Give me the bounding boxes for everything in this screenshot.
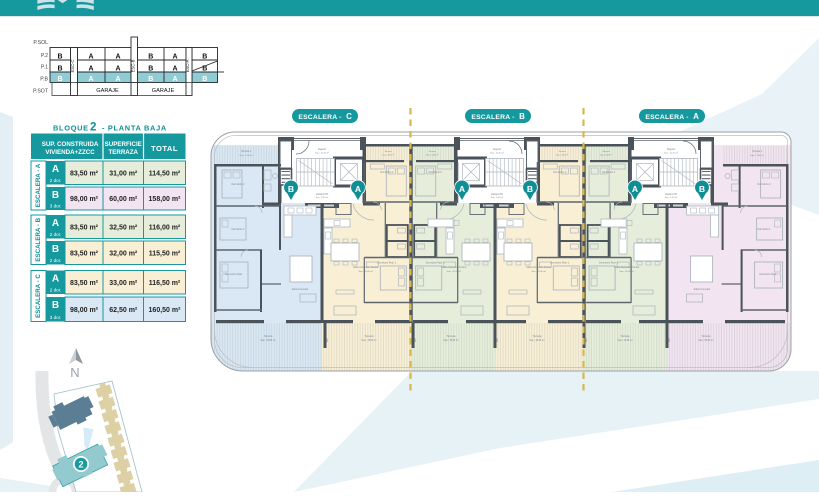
svg-text:Salón-Comedor: Salón-Comedor bbox=[694, 288, 711, 291]
svg-text:Salón-Comedor-Cocina: Salón-Comedor-Cocina bbox=[526, 266, 552, 269]
svg-text:ESCALERA -: ESCALERA - bbox=[298, 114, 341, 121]
svg-text:SEP.: SEP. bbox=[669, 337, 671, 342]
svg-text:Sup.: 60,00 m²: Sup.: 60,00 m² bbox=[698, 339, 713, 342]
svg-text:Sup.: 20,05 m²: Sup.: 20,05 m² bbox=[358, 270, 373, 273]
svg-text:Sup.: 10,15 m²: Sup.: 10,15 m² bbox=[490, 152, 504, 155]
svg-text:Dormitorio Ppal.: Dormitorio Ppal. bbox=[225, 273, 242, 276]
svg-text:A: A bbox=[88, 66, 93, 73]
svg-text:Dormitorio Ppal. 1: Dormitorio Ppal. 1 bbox=[426, 262, 446, 265]
svg-text:SEP.: SEP. bbox=[327, 337, 329, 342]
svg-text:Zaguán: Zaguán bbox=[667, 148, 676, 151]
svg-text:SEP.: SEP. bbox=[497, 337, 499, 342]
svg-text:62,50 m²: 62,50 m² bbox=[109, 307, 138, 314]
svg-text:B: B bbox=[52, 300, 59, 311]
svg-text:B: B bbox=[202, 76, 207, 83]
svg-text:Sup.: 4,60 m²: Sup.: 4,60 m² bbox=[382, 154, 394, 157]
svg-text:Terraza: Terraza bbox=[533, 334, 542, 338]
svg-text:ESCALERA -: ESCALERA - bbox=[645, 114, 688, 121]
svg-text:TERRAZA: TERRAZA bbox=[108, 149, 138, 156]
svg-text:B: B bbox=[519, 112, 525, 121]
svg-text:Rellano PB: Rellano PB bbox=[316, 194, 328, 196]
svg-text:Sup.: 4,05 m²: Sup.: 4,05 m² bbox=[665, 196, 678, 199]
svg-text:Sup.: 20,05 m²: Sup.: 20,05 m² bbox=[619, 270, 634, 273]
svg-text:GARAJE: GARAJE bbox=[96, 88, 119, 94]
svg-text:Sup.: 7,38 m²: Sup.: 7,38 m² bbox=[239, 154, 252, 157]
svg-text:A: A bbox=[52, 274, 59, 285]
svg-text:A: A bbox=[52, 164, 59, 175]
svg-text:Sup.: 20,05 m²: Sup.: 20,05 m² bbox=[447, 270, 462, 273]
svg-text:Salón-Comedor-Cocina: Salón-Comedor-Cocina bbox=[353, 266, 379, 269]
svg-text:Terraza: Terraza bbox=[621, 334, 630, 338]
svg-text:Salón-Comedor: Salón-Comedor bbox=[292, 288, 309, 291]
svg-text:SUPERFICIE: SUPERFICIE bbox=[105, 141, 142, 148]
svg-text:83,50 m²: 83,50 m² bbox=[70, 280, 99, 287]
svg-text:115,50 m²: 115,50 m² bbox=[149, 250, 181, 257]
svg-text:Sup.: 4,60 m²: Sup.: 4,60 m² bbox=[426, 154, 438, 157]
svg-text:C: C bbox=[346, 112, 352, 121]
svg-text:83,50 m²: 83,50 m² bbox=[70, 170, 99, 177]
svg-text:2 dor.: 2 dor. bbox=[50, 232, 62, 237]
svg-text:A: A bbox=[88, 76, 93, 83]
svg-text:TOTAL: TOTAL bbox=[151, 144, 178, 153]
svg-text:Rellano PB: Rellano PB bbox=[665, 194, 677, 196]
svg-text:B: B bbox=[148, 66, 153, 73]
svg-text:A: A bbox=[355, 184, 361, 194]
svg-text:A: A bbox=[632, 184, 638, 194]
svg-text:Dormitorio 2: Dormitorio 2 bbox=[231, 183, 245, 186]
svg-text:A: A bbox=[172, 66, 177, 73]
svg-text:Sup.: 4,60 m²: Sup.: 4,60 m² bbox=[600, 154, 612, 157]
svg-text:Terraza: Terraza bbox=[702, 334, 711, 338]
svg-text:Dormitorio 2: Dormitorio 2 bbox=[429, 171, 443, 174]
svg-text:ESCALERA - A: ESCALERA - A bbox=[35, 163, 42, 207]
svg-text:Sup.: 33,00 m²: Sup.: 33,00 m² bbox=[361, 339, 376, 342]
svg-text:ESC-C: ESC-C bbox=[70, 59, 75, 72]
svg-text:2: 2 bbox=[78, 460, 83, 470]
svg-text:Zaguán: Zaguán bbox=[493, 148, 502, 151]
svg-text:2: 2 bbox=[90, 122, 96, 134]
svg-text:Sup.: 4,05 m²: Sup.: 4,05 m² bbox=[491, 196, 504, 199]
svg-text:Terraza: Terraza bbox=[447, 334, 456, 338]
svg-text:116,50 m²: 116,50 m² bbox=[149, 280, 181, 287]
svg-text:Terraza 1: Terraza 1 bbox=[752, 150, 763, 153]
svg-text:Salón-Comedor-Cocina: Salón-Comedor-Cocina bbox=[614, 266, 640, 269]
svg-text:83,50 m²: 83,50 m² bbox=[70, 250, 99, 257]
svg-text:158,00 m²: 158,00 m² bbox=[149, 196, 182, 203]
svg-text:Dormitorio Ppal.: Dormitorio Ppal. bbox=[759, 273, 776, 276]
svg-text:2 dor.: 2 dor. bbox=[50, 288, 62, 293]
svg-text:Rellano PB: Rellano PB bbox=[491, 194, 503, 196]
svg-text:B: B bbox=[148, 54, 153, 61]
svg-text:A: A bbox=[172, 76, 177, 83]
svg-text:A: A bbox=[693, 112, 699, 121]
svg-text:ESCALERA - C: ESCALERA - C bbox=[35, 274, 42, 318]
svg-text:B: B bbox=[699, 184, 705, 194]
svg-text:B: B bbox=[57, 76, 62, 83]
svg-text:P.SOL: P.SOL bbox=[33, 40, 48, 46]
svg-text:Dormitorio Ppal. 1: Dormitorio Ppal. 1 bbox=[599, 262, 619, 265]
svg-text:3 dor.: 3 dor. bbox=[50, 315, 62, 320]
svg-text:160,50 m²: 160,50 m² bbox=[149, 307, 182, 314]
svg-text:Dormitorio Ppal. 1: Dormitorio Ppal. 1 bbox=[377, 262, 397, 265]
svg-text:Salón-Comedor-Cocina: Salón-Comedor-Cocina bbox=[441, 266, 467, 269]
svg-text:Sup.: 31,00 m²: Sup.: 31,00 m² bbox=[617, 339, 632, 342]
svg-text:33,00 m²: 33,00 m² bbox=[109, 280, 138, 287]
svg-text:B: B bbox=[288, 184, 294, 194]
svg-text:Terraza: Terraza bbox=[384, 150, 392, 153]
svg-text:A: A bbox=[459, 184, 465, 194]
svg-text:B: B bbox=[57, 54, 62, 61]
svg-text:Dormitorio 1: Dormitorio 1 bbox=[757, 228, 771, 231]
svg-text:B: B bbox=[52, 244, 59, 255]
svg-text:B: B bbox=[527, 184, 533, 194]
svg-text:SEP.: SEP. bbox=[586, 337, 588, 342]
svg-text:2 dor.: 2 dor. bbox=[50, 178, 62, 183]
svg-text:98,00 m²: 98,00 m² bbox=[70, 196, 99, 203]
svg-text:ESCALERA -: ESCALERA - bbox=[471, 114, 514, 121]
svg-text:VIVIENDA+ZZCC: VIVIENDA+ZZCC bbox=[45, 149, 95, 156]
svg-text:B: B bbox=[52, 190, 59, 201]
svg-text:Dormitorio 1: Dormitorio 1 bbox=[231, 228, 245, 231]
svg-text:Dormitorio 2: Dormitorio 2 bbox=[553, 171, 567, 174]
svg-text:Sup.: 32,50 m²: Sup.: 32,50 m² bbox=[443, 339, 458, 342]
svg-text:Sup.: 20,05 m²: Sup.: 20,05 m² bbox=[531, 270, 546, 273]
svg-text:Sup.: 4,60 m²: Sup.: 4,60 m² bbox=[556, 154, 568, 157]
svg-text:116,00 m²: 116,00 m² bbox=[149, 224, 181, 231]
svg-text:Terraza: Terraza bbox=[558, 150, 566, 153]
svg-text:ESCALERA - B: ESCALERA - B bbox=[35, 217, 42, 261]
svg-text:60,00 m²: 60,00 m² bbox=[109, 196, 138, 203]
svg-text:Dormitorio 2: Dormitorio 2 bbox=[757, 183, 771, 186]
svg-text:Sup.: 10,15 m²: Sup.: 10,15 m² bbox=[664, 152, 678, 155]
svg-text:P.SOT: P.SOT bbox=[33, 89, 49, 95]
svg-text:2 dor.: 2 dor. bbox=[50, 258, 62, 263]
svg-text:B: B bbox=[202, 66, 207, 73]
svg-text:N: N bbox=[70, 365, 79, 380]
svg-text:SUP. CONSTRUIDA: SUP. CONSTRUIDA bbox=[42, 141, 99, 148]
svg-text:Sup.: 10,15 m²: Sup.: 10,15 m² bbox=[315, 152, 329, 155]
svg-text:98,00 m²: 98,00 m² bbox=[70, 307, 99, 314]
svg-text:A: A bbox=[172, 54, 177, 61]
svg-text:Terraza: Terraza bbox=[365, 334, 374, 338]
svg-text:Dormitorio Ppal. 1: Dormitorio Ppal. 1 bbox=[550, 262, 570, 265]
svg-text:P.B: P.B bbox=[40, 77, 48, 83]
svg-text:P.1: P.1 bbox=[41, 65, 48, 71]
svg-text:SEP.: SEP. bbox=[415, 337, 417, 342]
svg-text:Terraza: Terraza bbox=[602, 150, 610, 153]
svg-text:114,50 m²: 114,50 m² bbox=[149, 170, 181, 177]
svg-text:3 dor.: 3 dor. bbox=[50, 204, 62, 209]
svg-text:- PLANTA BAJA: - PLANTA BAJA bbox=[102, 124, 167, 133]
svg-text:Sup.: 62,50 m²: Sup.: 62,50 m² bbox=[260, 339, 275, 342]
svg-text:A: A bbox=[115, 54, 120, 61]
svg-text:GARAJE: GARAJE bbox=[152, 88, 175, 94]
svg-text:Zaguán: Zaguán bbox=[318, 148, 327, 151]
svg-text:BLOQUE: BLOQUE bbox=[53, 124, 89, 133]
svg-text:Sup.: 7,38 m²: Sup.: 7,38 m² bbox=[750, 154, 763, 157]
svg-text:A: A bbox=[52, 218, 59, 229]
svg-text:Dormitorio 2: Dormitorio 2 bbox=[602, 171, 616, 174]
svg-text:B: B bbox=[57, 66, 62, 73]
svg-text:A: A bbox=[115, 76, 120, 83]
svg-text:31,00 m²: 31,00 m² bbox=[109, 170, 138, 177]
svg-text:32,50 m²: 32,50 m² bbox=[109, 224, 138, 231]
svg-text:A: A bbox=[88, 54, 93, 61]
svg-text:Sup.: 4,05 m²: Sup.: 4,05 m² bbox=[316, 196, 329, 199]
svg-text:Terraza: Terraza bbox=[428, 150, 436, 153]
svg-text:32,00 m²: 32,00 m² bbox=[109, 250, 138, 257]
svg-text:Dormitorio 2: Dormitorio 2 bbox=[380, 171, 394, 174]
svg-text:Terraza: Terraza bbox=[264, 334, 273, 338]
svg-text:B: B bbox=[148, 76, 153, 83]
svg-text:B: B bbox=[202, 54, 207, 61]
svg-text:Terraza 1: Terraza 1 bbox=[241, 150, 252, 153]
svg-text:Sup.: 32,00 m²: Sup.: 32,00 m² bbox=[529, 339, 544, 342]
svg-text:83,50 m²: 83,50 m² bbox=[70, 224, 99, 231]
svg-text:P.2: P.2 bbox=[41, 53, 48, 59]
svg-text:ESC-B: ESC-B bbox=[130, 59, 135, 72]
svg-text:ESC-A: ESC-A bbox=[185, 59, 190, 72]
svg-text:A: A bbox=[115, 66, 120, 73]
